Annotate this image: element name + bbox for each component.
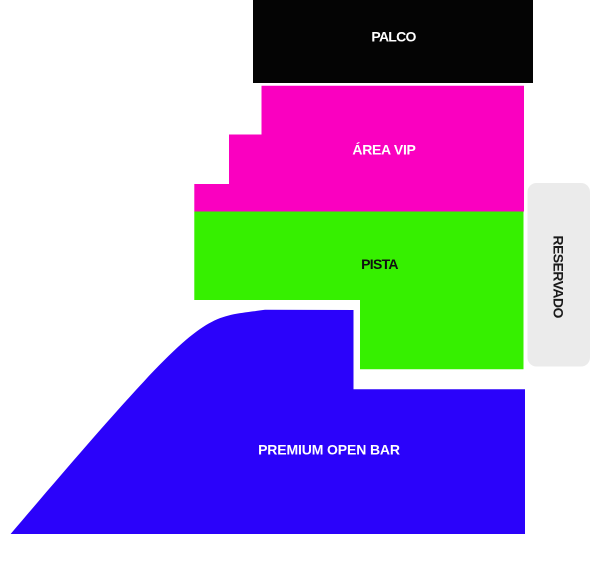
svg-text:PALCO: PALCO	[371, 28, 416, 44]
svg-text:PREMIUM OPEN BAR: PREMIUM OPEN BAR	[258, 442, 400, 458]
svg-text:ÁREA VIP: ÁREA VIP	[352, 142, 415, 158]
svg-text:PISTA: PISTA	[361, 256, 398, 272]
svg-text:RESERVADO: RESERVADO	[550, 235, 566, 318]
